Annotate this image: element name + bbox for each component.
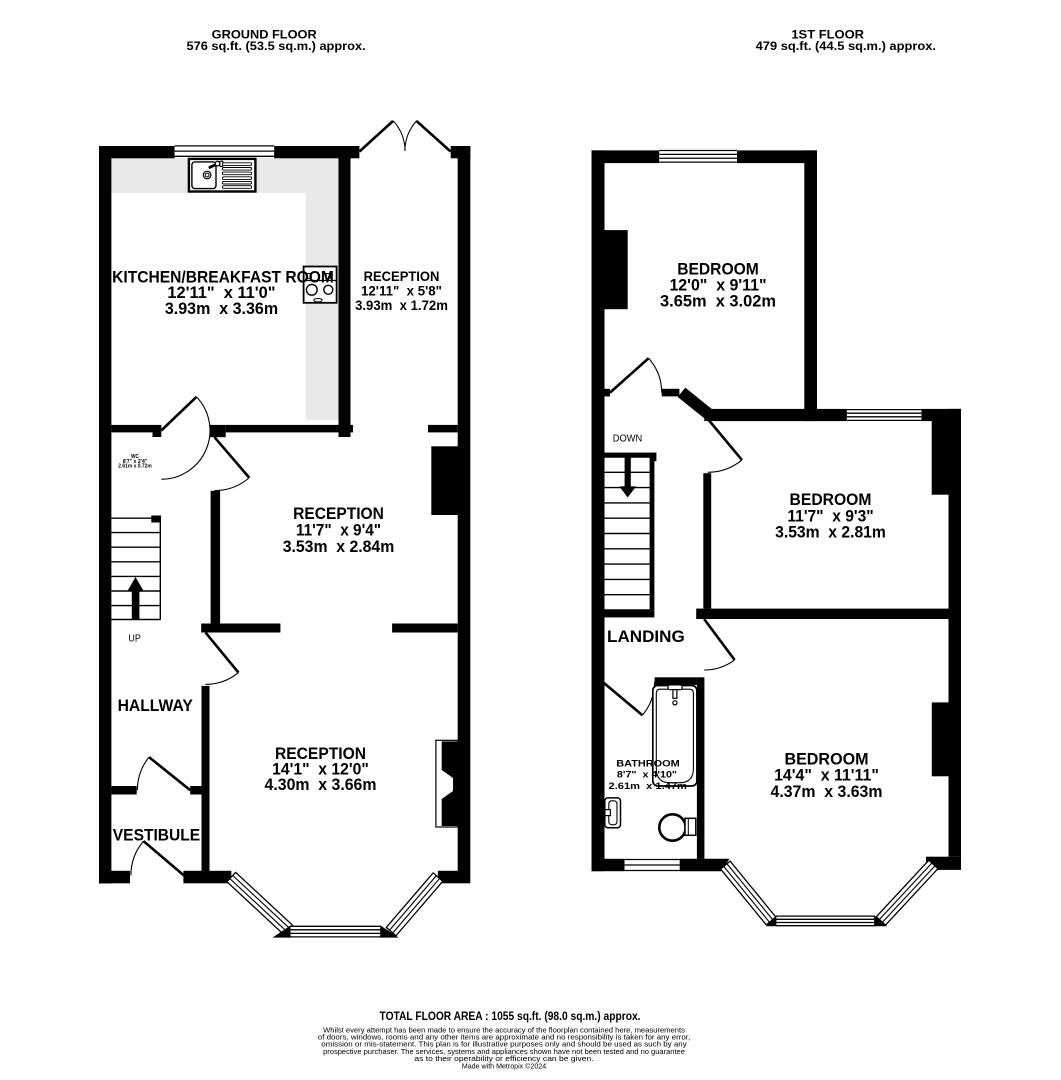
svg-text:Made with Metropix ©2024: Made with Metropix ©2024 — [462, 1061, 546, 1070]
svg-text:VESTIBULE: VESTIBULE — [113, 826, 201, 844]
svg-text:576 sq.ft. (53.5 sq.m.) approx: 576 sq.ft. (53.5 sq.m.) approx. — [187, 39, 366, 53]
svg-text:2.61m x 0.72m: 2.61m x 0.72m — [118, 464, 152, 470]
svg-text:RECEPTION: RECEPTION — [293, 505, 384, 523]
svg-text:3.53m x 2.84m: 3.53m x 2.84m — [283, 538, 395, 556]
svg-text:12'11" x 5'8": 12'11" x 5'8" — [361, 283, 442, 298]
svg-text:8'7" x 4'10": 8'7" x 4'10" — [617, 769, 677, 780]
svg-text:479 sq.ft. (44.5 sq.m.) approx: 479 sq.ft. (44.5 sq.m.) approx. — [756, 39, 936, 53]
svg-text:DOWN: DOWN — [613, 434, 642, 445]
svg-text:LANDING: LANDING — [607, 628, 685, 646]
svg-text:3.93m x 3.36m: 3.93m x 3.36m — [165, 300, 278, 318]
svg-text:11'7" x 9'4": 11'7" x 9'4" — [296, 521, 381, 539]
svg-text:TOTAL FLOOR AREA : 1055 sq.ft.: TOTAL FLOOR AREA : 1055 sq.ft. (98.0 sq.… — [380, 1009, 641, 1023]
svg-text:RECEPTION: RECEPTION — [364, 269, 440, 284]
svg-text:3.93m x 1.72m: 3.93m x 1.72m — [355, 298, 448, 313]
svg-text:BATHROOM: BATHROOM — [616, 759, 679, 770]
svg-text:UP: UP — [128, 634, 141, 645]
svg-text:2.61m x 1.47m: 2.61m x 1.47m — [609, 781, 687, 792]
svg-text:4.37m x 3.63m: 4.37m x 3.63m — [771, 783, 883, 801]
svg-text:HALLWAY: HALLWAY — [118, 697, 193, 715]
svg-text:4.30m x 3.66m: 4.30m x 3.66m — [265, 776, 377, 794]
svg-text:3.65m x 3.02m: 3.65m x 3.02m — [660, 293, 776, 311]
svg-text:3.53m x 2.81m: 3.53m x 2.81m — [775, 523, 886, 541]
